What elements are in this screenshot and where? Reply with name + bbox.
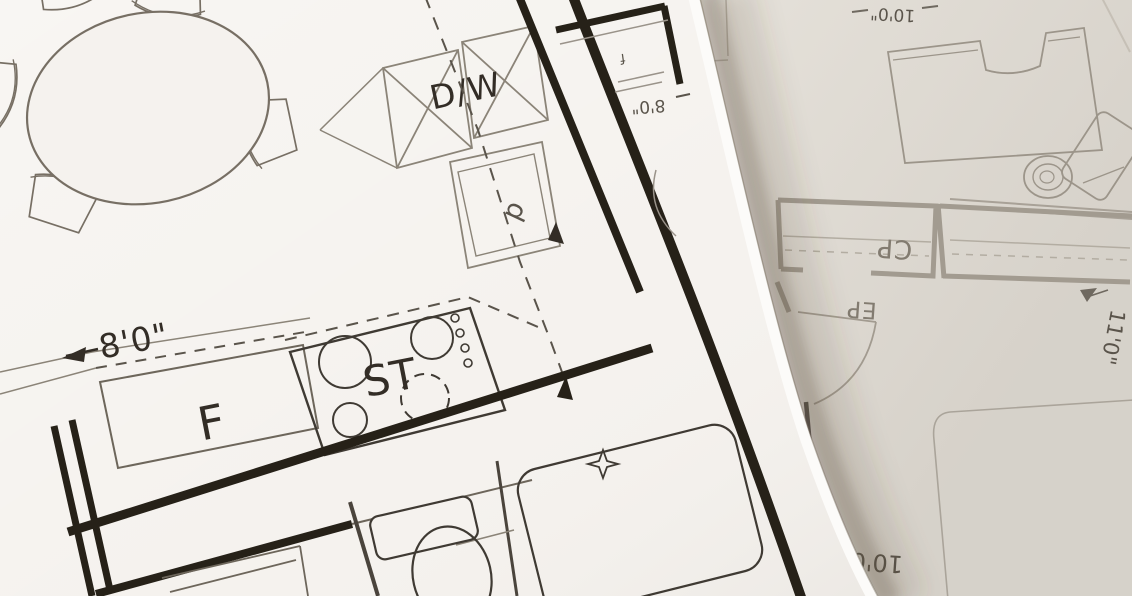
stove-label: ST — [359, 349, 422, 407]
dim-top-text: 10'0" — [870, 3, 916, 25]
blueprint-photo: CP EP 10'0" 11'0" — [0, 0, 1132, 596]
closet-cp-label: CP — [876, 232, 914, 264]
dim-upper-text: 8'0" — [631, 95, 666, 117]
floorplan-scene: CP EP 10'0" 11'0" — [0, 0, 1132, 596]
